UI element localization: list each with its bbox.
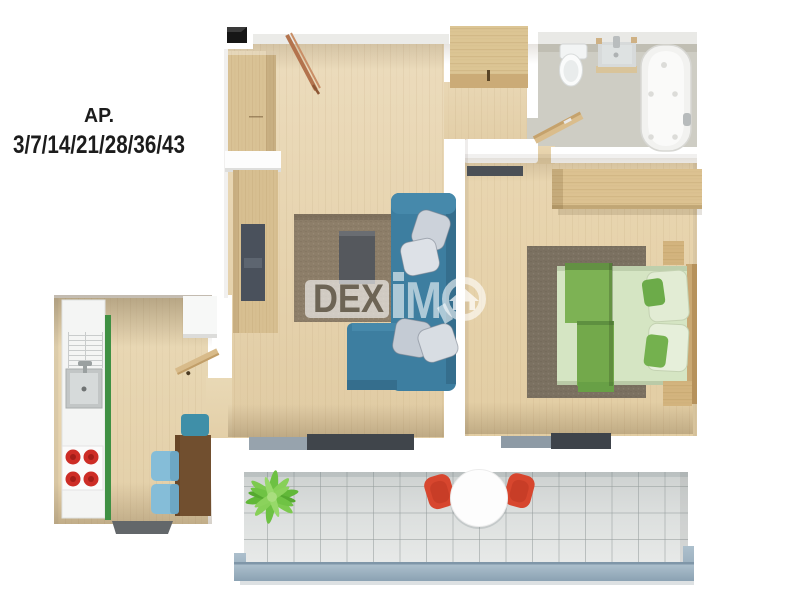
svg-text:DEX: DEX <box>313 277 384 321</box>
svg-text:AP.: AP. <box>84 105 114 127</box>
svg-text:3/7/14/21/28/36/43: 3/7/14/21/28/36/43 <box>13 131 185 159</box>
svg-text:M: M <box>405 272 442 330</box>
